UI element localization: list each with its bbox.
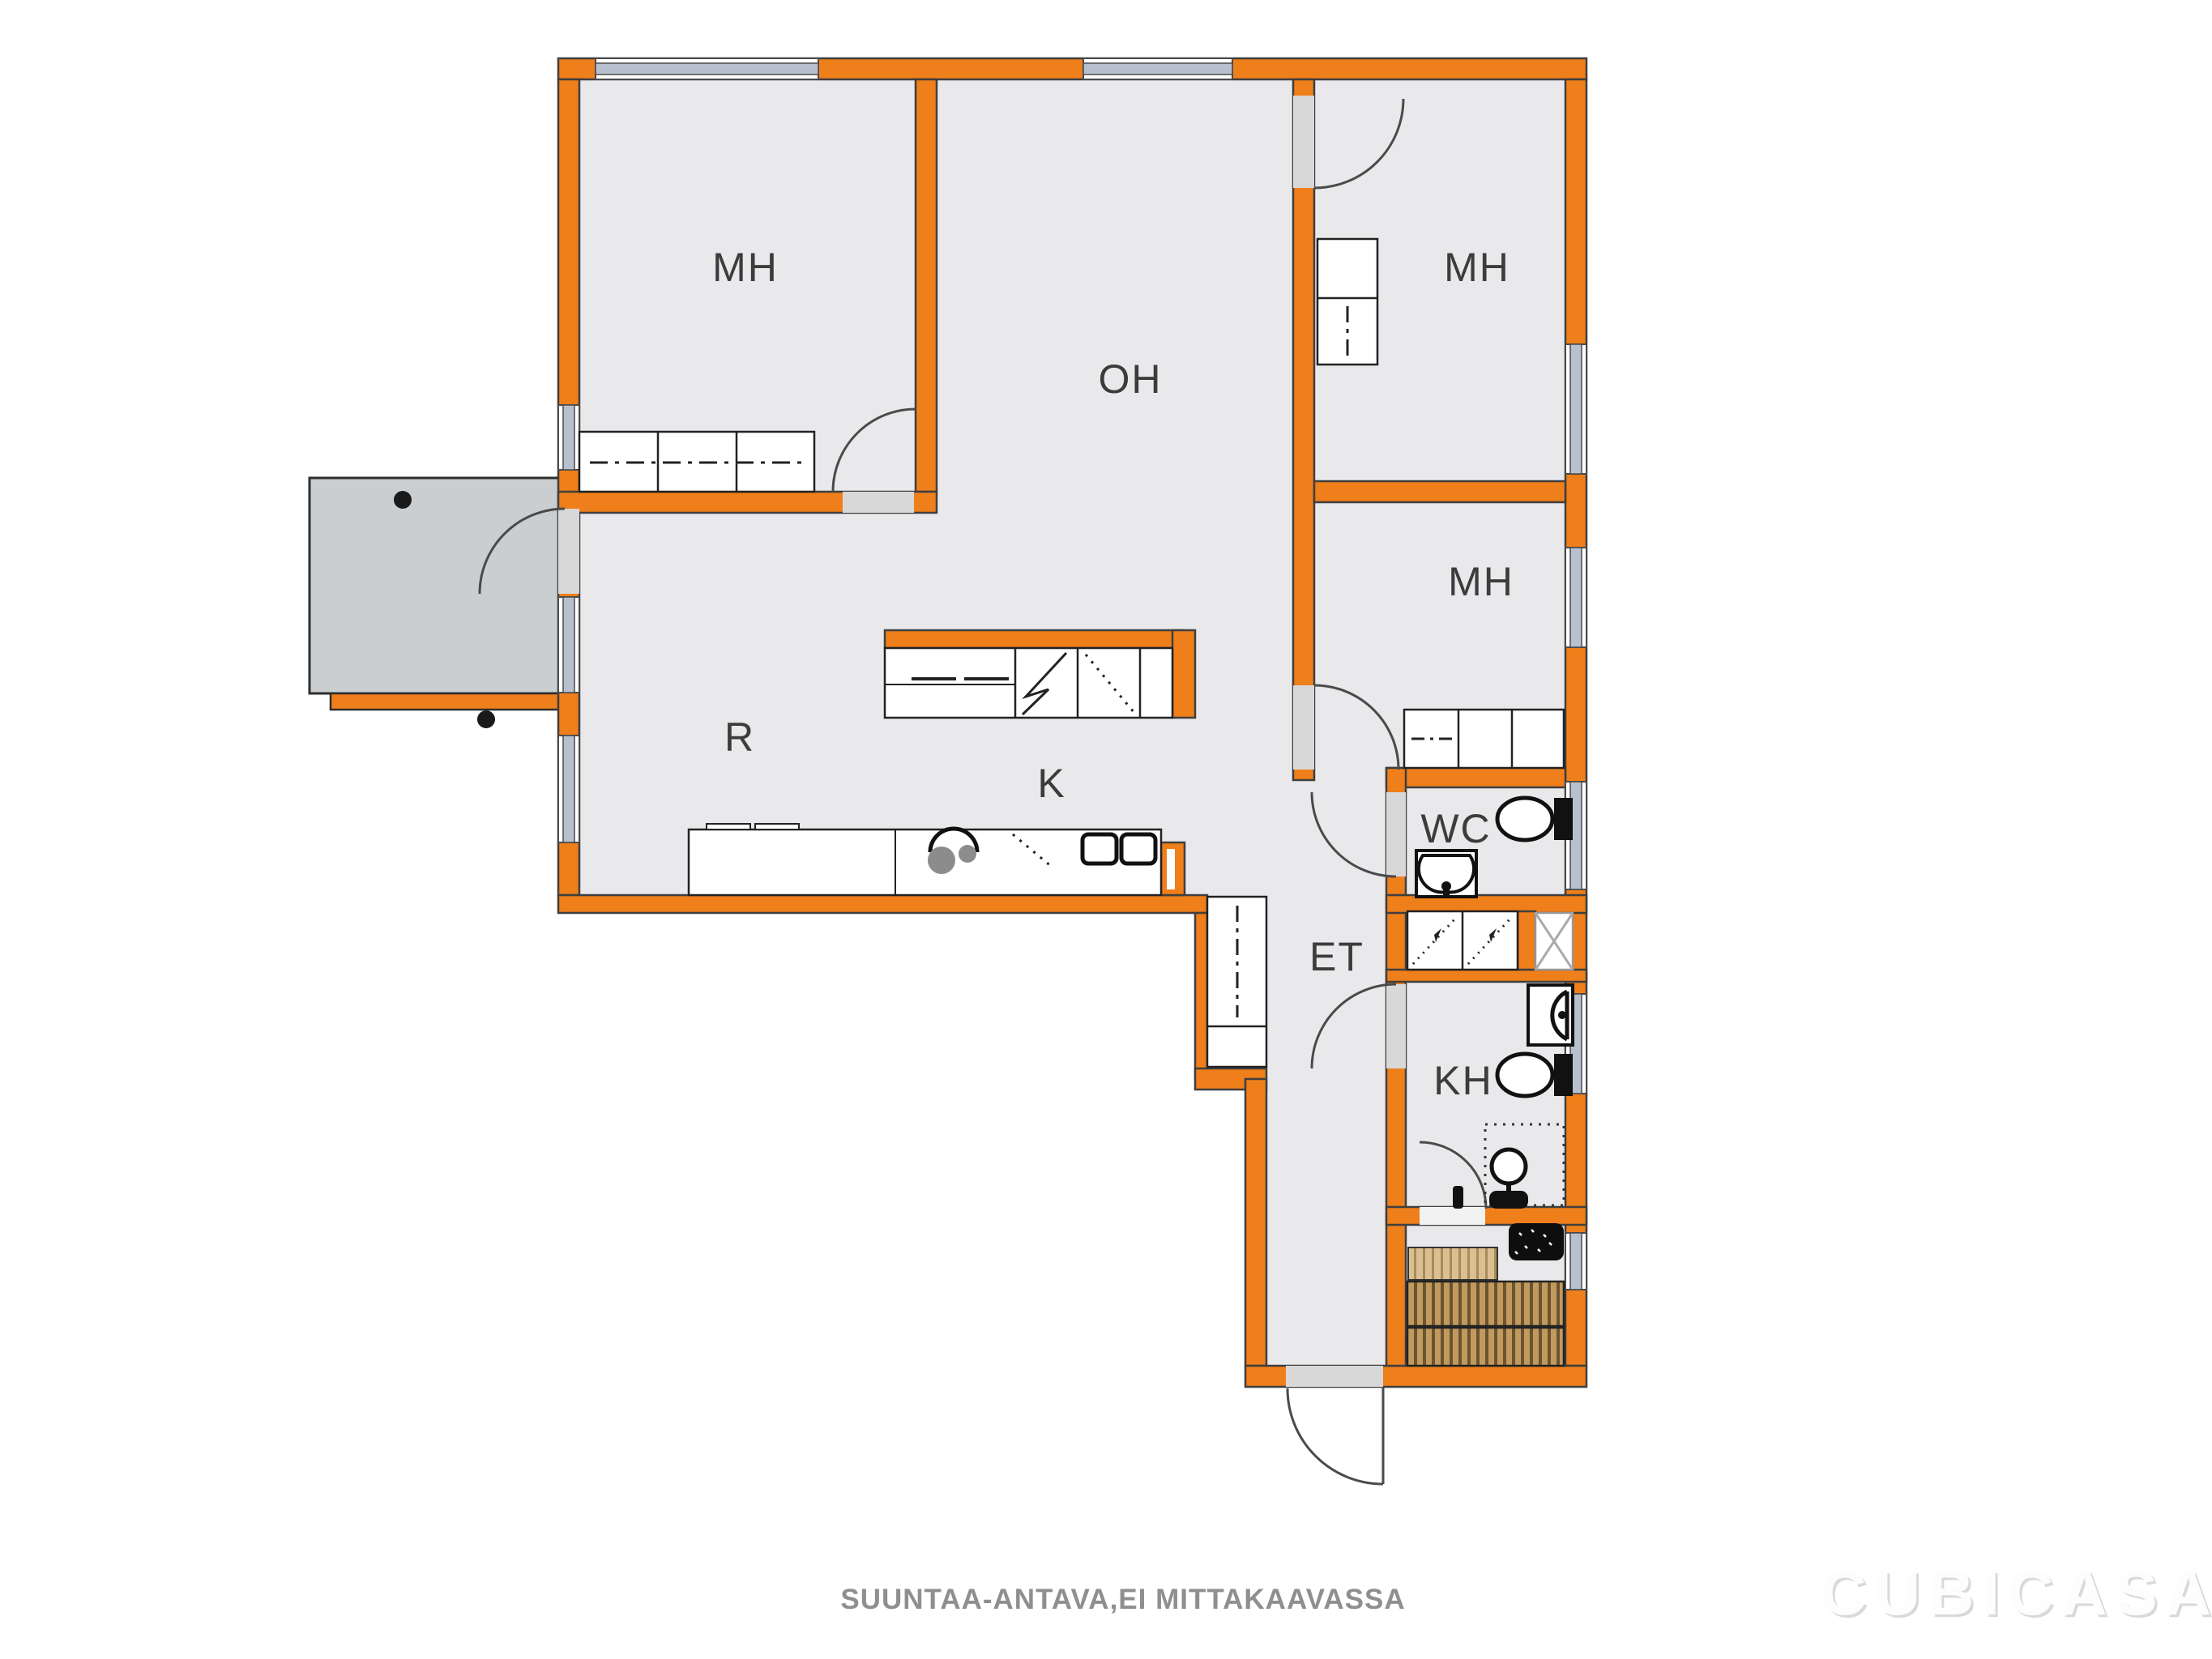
room-label-k: K bbox=[1037, 761, 1065, 806]
door-opening-wc bbox=[1386, 792, 1406, 876]
bedroom3-wardrobe bbox=[1404, 710, 1564, 768]
terrace-post-icon bbox=[477, 710, 495, 728]
shower-handle bbox=[1453, 1186, 1463, 1209]
door-opening-sauna bbox=[1420, 1207, 1485, 1225]
room-label-mh1: MH bbox=[712, 245, 779, 290]
room-label-kh: KH bbox=[1433, 1058, 1492, 1103]
wall-bedroom1-east bbox=[916, 79, 937, 492]
door-swing-icon bbox=[1287, 1388, 1383, 1484]
window-glass bbox=[1570, 344, 1582, 474]
door-opening-terrace bbox=[558, 509, 579, 594]
room-label-mh2: MH bbox=[1444, 245, 1510, 290]
terrace-deck bbox=[310, 478, 575, 693]
sink-faucet-stem bbox=[1443, 889, 1450, 898]
door-opening-kh bbox=[1386, 984, 1406, 1068]
kitchen-sink-icon bbox=[1083, 834, 1117, 864]
wall-exterior-kitchen-bottom bbox=[558, 895, 1207, 913]
brand-watermark: CUBICASA CUBICASA bbox=[1821, 1557, 2212, 1631]
disclaimer-text: SUUNTAA-ANTAVA,EI MITTAKAAVASSA bbox=[840, 1584, 1405, 1615]
hall-cabinets bbox=[1207, 897, 1266, 1067]
shower-mixer-icon bbox=[1492, 1149, 1526, 1183]
drawer-handles bbox=[707, 824, 750, 829]
wall-kh-south bbox=[1386, 1207, 1586, 1225]
door-opening-bedroom2 bbox=[1293, 96, 1314, 188]
wall-bedroom3-south bbox=[1386, 768, 1565, 787]
cooktop-icon bbox=[959, 845, 976, 863]
sliding-wardrobe bbox=[1407, 911, 1518, 970]
room-label-oh: OH bbox=[1099, 356, 1163, 402]
wall-closet-south bbox=[1386, 970, 1586, 982]
basin-faucet bbox=[1558, 1011, 1566, 1019]
sauna-bench-icon bbox=[1408, 1247, 1497, 1280]
floor-plan-canvas: MH OH MH MH R K WC ET KH SUUNTAA-ANTAVA,… bbox=[0, 0, 2212, 1659]
door-opening-entrance bbox=[1286, 1366, 1383, 1387]
kitchen-counter-row bbox=[689, 824, 1161, 895]
wall-hall-west bbox=[1195, 913, 1207, 1079]
toilet-tank bbox=[1554, 798, 1573, 840]
shower-mixer-base bbox=[1489, 1191, 1528, 1209]
window-glass bbox=[563, 405, 574, 470]
bedroom2-wardrobe bbox=[1317, 239, 1377, 365]
bedroom1-wardrobe bbox=[579, 432, 814, 492]
terrace-step bbox=[331, 693, 567, 710]
brand-logo: CUBICASA bbox=[1821, 1557, 2212, 1628]
kitchen-island bbox=[885, 648, 1172, 718]
wall-entry-west bbox=[1245, 1079, 1266, 1366]
door-opening-bedroom1 bbox=[843, 492, 914, 513]
wall-island-top bbox=[885, 630, 1185, 648]
room-label-wc: WC bbox=[1420, 806, 1491, 851]
toilet-icon bbox=[1497, 798, 1552, 840]
room-label-r: R bbox=[724, 714, 755, 760]
floorplan-page: MH OH MH MH R K WC ET KH SUUNTAA-ANTAVA,… bbox=[0, 0, 2212, 1659]
drawer-handles bbox=[755, 824, 799, 829]
room-label-mh3: MH bbox=[1448, 559, 1514, 604]
sauna-stove-icon bbox=[1509, 1223, 1564, 1260]
sauna-bench-icon bbox=[1407, 1328, 1564, 1366]
cooktop-icon bbox=[928, 847, 955, 874]
window-glass bbox=[596, 63, 818, 75]
window-glass bbox=[1083, 63, 1232, 75]
window-glass bbox=[563, 736, 574, 842]
kitchen-sink-icon bbox=[1121, 834, 1155, 864]
wall-exterior-right bbox=[1565, 79, 1586, 1366]
toilet-tank bbox=[1554, 1054, 1573, 1096]
terrace-post-icon bbox=[394, 491, 412, 509]
window-glass bbox=[1570, 548, 1582, 647]
toilet-icon bbox=[1497, 1054, 1552, 1096]
terrace bbox=[310, 478, 575, 728]
window-glass bbox=[1570, 1233, 1582, 1290]
room-label-et: ET bbox=[1309, 934, 1364, 979]
window-glass bbox=[563, 597, 574, 693]
wall-island-cap bbox=[1172, 630, 1195, 718]
door-opening-bedroom3 bbox=[1293, 685, 1314, 770]
counter-stub-slot bbox=[1167, 849, 1175, 889]
sauna-bench-icon bbox=[1407, 1282, 1564, 1326]
wardrobe-icon bbox=[1404, 710, 1564, 768]
ventilation-shaft bbox=[1535, 913, 1573, 970]
wall-bedroom2-south bbox=[1314, 481, 1565, 502]
wall-shaft-divider bbox=[1518, 911, 1535, 970]
